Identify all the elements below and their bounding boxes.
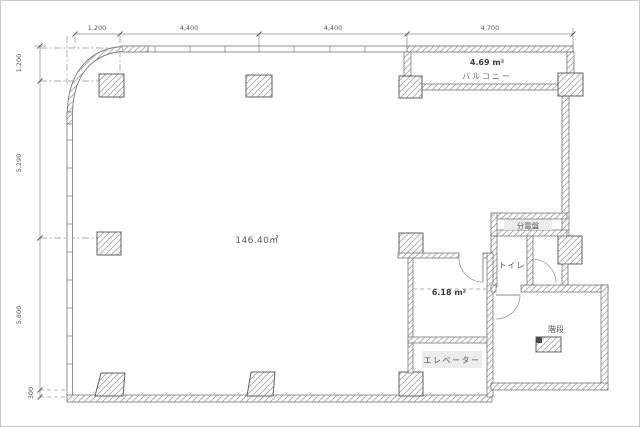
door-swing-arc xyxy=(496,295,520,319)
distribution-board-room: 分電盤 xyxy=(491,213,567,236)
toilet-room: トイレ xyxy=(491,236,568,287)
dim-top-4: 4,700 xyxy=(481,24,500,32)
door-swing-arc xyxy=(459,258,483,282)
service-area-label: 6.18 m² xyxy=(432,288,467,297)
outer-walls xyxy=(67,46,574,402)
toilet-label: トイレ xyxy=(499,261,526,270)
stairs-label: 階段 xyxy=(548,324,564,334)
bottom-wall xyxy=(67,395,492,402)
distribution-board-label: 分電盤 xyxy=(517,221,540,231)
dim-top-3: 4,400 xyxy=(324,24,343,32)
column xyxy=(558,73,583,96)
right-wall-stub xyxy=(567,52,574,73)
balcony-left-stub xyxy=(404,52,411,76)
dim-left-3: 5,800 xyxy=(15,306,23,325)
floor-plan-canvas: 1,200 4,400 4,400 4,700 1,200 5,290 5,80… xyxy=(0,0,640,427)
column xyxy=(399,372,423,396)
column xyxy=(247,372,275,396)
elevator-label: エレベーター xyxy=(424,356,481,365)
dimension-left: 1,200 5,290 5,800 300 xyxy=(15,44,46,400)
dim-top-2: 4,400 xyxy=(180,24,199,32)
column xyxy=(97,232,121,255)
column xyxy=(399,76,422,98)
dim-left-4: 300 xyxy=(27,387,35,399)
dim-top-1: 1,200 xyxy=(88,24,107,32)
column xyxy=(99,74,124,97)
column xyxy=(246,75,272,97)
column xyxy=(95,373,125,396)
stairs-room: 階段 xyxy=(491,285,608,390)
floor-plan-screenshot: 1,200 4,400 4,400 4,700 1,200 5,290 5,80… xyxy=(0,0,640,427)
balcony: 4.69 m² バルコニー xyxy=(422,58,559,90)
dim-left-1: 1,200 xyxy=(15,54,23,73)
dim-left-2: 5,290 xyxy=(15,154,23,173)
stair-start-mark xyxy=(536,337,542,343)
main-area-label: 146.40㎡ xyxy=(235,235,278,246)
balcony-name-label: バルコニー xyxy=(462,72,512,81)
left-wall xyxy=(67,112,73,397)
balcony-window-wall xyxy=(422,84,559,90)
elevator-room: エレベーター xyxy=(408,343,482,373)
door-swing-arc xyxy=(533,259,556,283)
column xyxy=(558,236,582,264)
balcony-outer-wall xyxy=(407,46,573,52)
balcony-area-label: 4.69 m² xyxy=(470,58,505,67)
column xyxy=(399,233,423,254)
